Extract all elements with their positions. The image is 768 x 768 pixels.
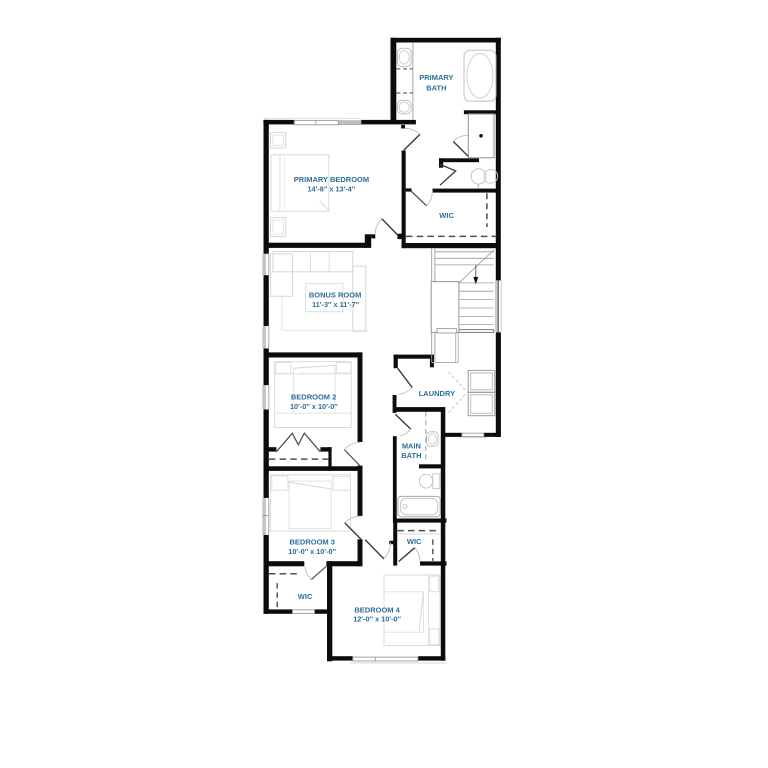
svg-text:10′-0″ x 10′-0″: 10′-0″ x 10′-0″ <box>288 547 336 556</box>
svg-text:WIC: WIC <box>298 592 313 601</box>
svg-text:LAUNDRY: LAUNDRY <box>419 389 455 398</box>
svg-text:10′-0″ x 10′-0″: 10′-0″ x 10′-0″ <box>290 402 338 411</box>
svg-text:BATH: BATH <box>401 451 421 460</box>
svg-text:BEDROOM 4: BEDROOM 4 <box>354 605 400 614</box>
svg-text:BEDROOM 2: BEDROOM 2 <box>291 393 336 402</box>
svg-text:14′-8″ x 13′-4″: 14′-8″ x 13′-4″ <box>307 185 355 194</box>
svg-text:PRIMARY BEDROOM: PRIMARY BEDROOM <box>294 175 369 184</box>
svg-text:BEDROOM 3: BEDROOM 3 <box>289 537 334 546</box>
svg-text:11′-3″ x 11′-7″: 11′-3″ x 11′-7″ <box>312 300 360 309</box>
svg-text:WIC: WIC <box>439 211 454 220</box>
svg-text:12′-0″ x 10′-0″: 12′-0″ x 10′-0″ <box>353 615 401 624</box>
svg-text:PRIMARY: PRIMARY <box>419 73 453 82</box>
svg-text:MAIN: MAIN <box>402 442 421 451</box>
svg-text:BONUS ROOM: BONUS ROOM <box>309 291 362 300</box>
svg-text:BATH: BATH <box>426 84 446 93</box>
svg-text:WIC: WIC <box>407 537 422 546</box>
